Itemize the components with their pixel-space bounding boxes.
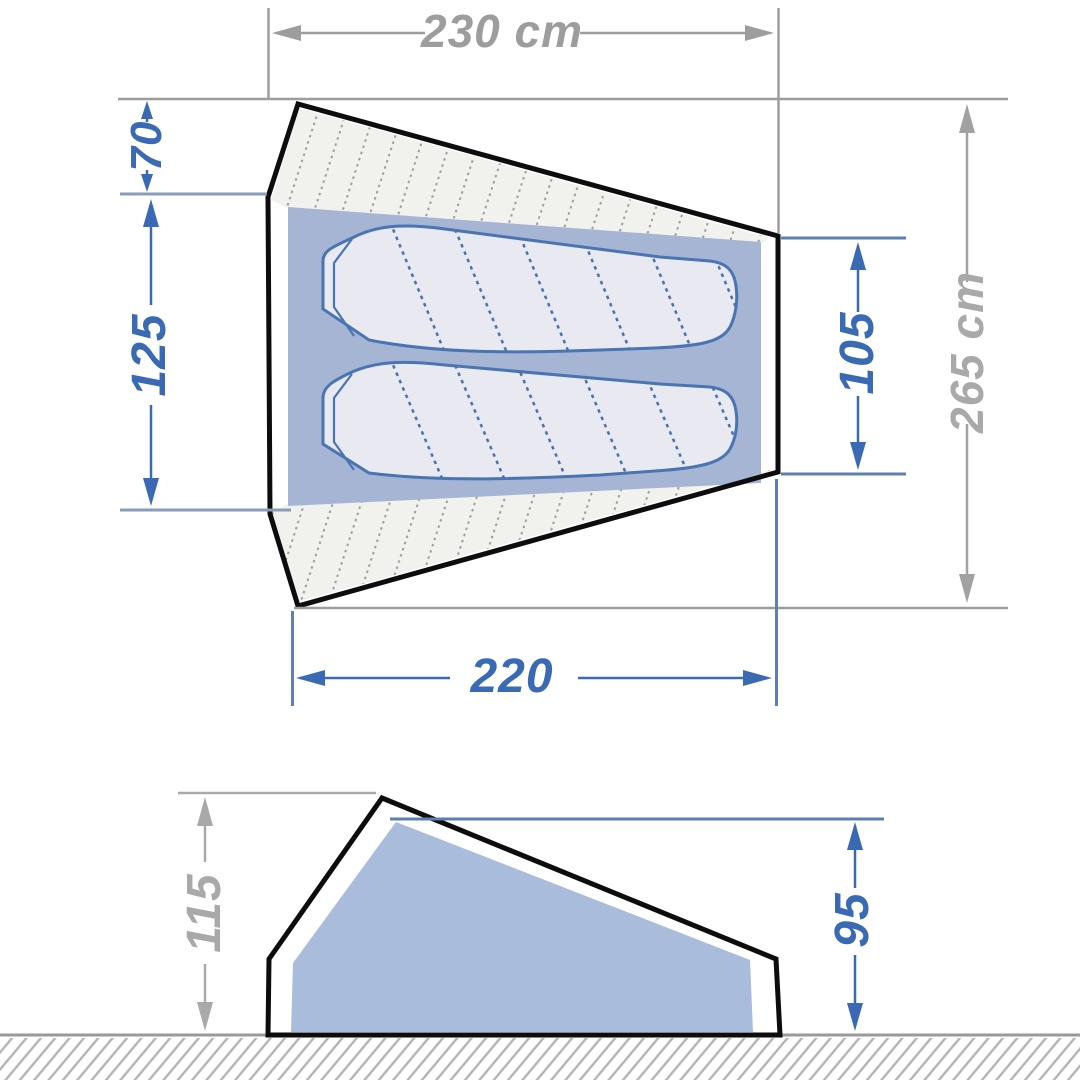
inner-height-label: 95 bbox=[829, 892, 877, 947]
top-view bbox=[268, 104, 778, 606]
arrow-down-icon bbox=[141, 174, 153, 192]
ground-hatch bbox=[0, 1038, 1080, 1080]
arrow-up-icon bbox=[959, 104, 975, 133]
arrow-up-icon bbox=[143, 199, 159, 227]
inner-width-right-label: 105 bbox=[834, 311, 882, 394]
arrow-down-icon bbox=[197, 1002, 213, 1031]
arrow-up-icon bbox=[850, 242, 866, 270]
outer-width-label: 230 cm bbox=[421, 8, 583, 54]
arrow-down-icon bbox=[959, 574, 975, 603]
side-view bbox=[0, 798, 1080, 1080]
arrow-down-icon bbox=[850, 442, 866, 470]
arrow-up-icon bbox=[197, 797, 213, 826]
outer-length-label: 265 cm bbox=[944, 271, 990, 433]
arrow-down-icon bbox=[143, 478, 159, 506]
arrow-down-icon bbox=[847, 1003, 863, 1031]
arrow-right-icon bbox=[745, 25, 774, 41]
arrow-left-icon bbox=[272, 25, 301, 41]
outer-height-label: 115 bbox=[181, 873, 229, 953]
inner-width-left-label: 125 bbox=[126, 313, 174, 396]
floor-length-label: 220 bbox=[470, 653, 553, 701]
arrow-up-icon bbox=[847, 822, 863, 850]
arrow-left-icon bbox=[296, 670, 325, 686]
arrow-up-icon bbox=[141, 101, 153, 119]
tent-dimension-diagram: 230 cm 70 125 105 265 cm 220 115 95 bbox=[0, 0, 1080, 1080]
arrow-right-icon bbox=[743, 670, 772, 686]
vestibule-depth-label: 70 bbox=[125, 121, 169, 172]
